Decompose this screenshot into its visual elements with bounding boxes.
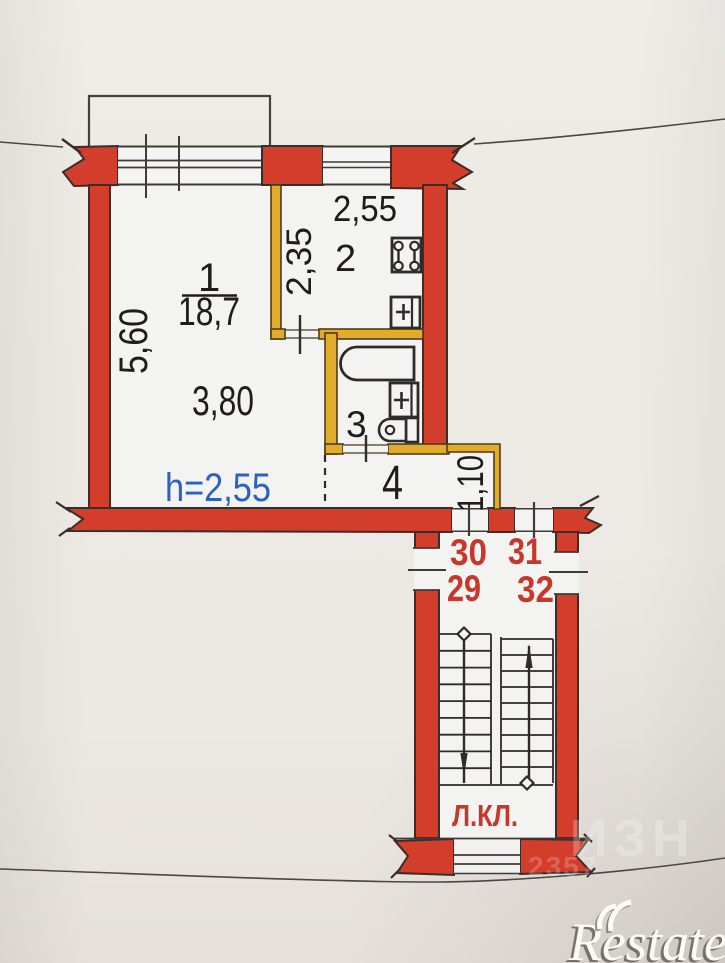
svg-text:Л.КЛ.: Л.КЛ. [452, 798, 518, 833]
svg-text:5,60: 5,60 [112, 308, 156, 374]
svg-text:4: 4 [382, 457, 403, 510]
svg-text:29: 29 [447, 568, 481, 609]
svg-text:2,35: 2,35 [280, 227, 319, 296]
svg-text:31: 31 [508, 531, 542, 572]
svg-text:1,10: 1,10 [450, 455, 491, 512]
svg-text:Restate: Restate [568, 912, 725, 963]
svg-text:30: 30 [450, 532, 487, 573]
svg-text:2357: 2357 [528, 851, 598, 882]
svg-text:2,55: 2,55 [333, 188, 397, 229]
svg-text:3,80: 3,80 [192, 377, 254, 424]
svg-text:3: 3 [346, 404, 367, 445]
svg-text:32: 32 [517, 569, 554, 610]
svg-text:h=2,55: h=2,55 [165, 466, 271, 510]
svg-text:2: 2 [335, 238, 356, 280]
svg-text:18,7: 18,7 [178, 290, 240, 334]
